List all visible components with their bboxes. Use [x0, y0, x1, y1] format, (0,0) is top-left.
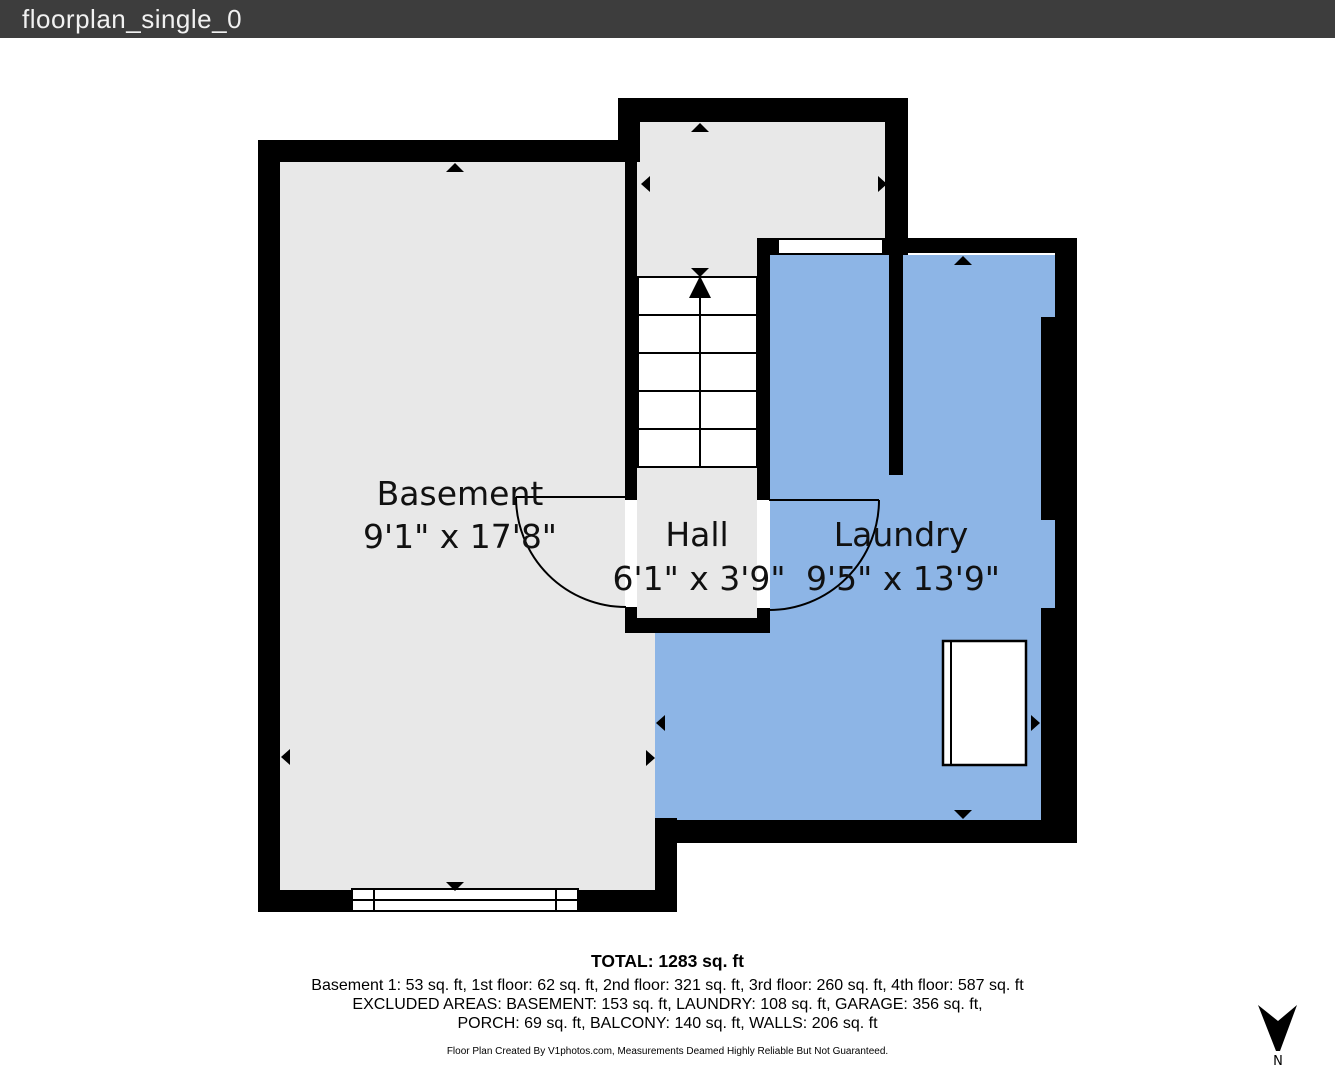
basement-bottom-window	[352, 889, 578, 911]
floorplan-drawing: Basement 9'1" x 17'8" Hall 6'1" x 3'9" L…	[0, 0, 1335, 1080]
laundry-label: Laundry	[834, 515, 968, 554]
total-area-text: TOTAL: 1283 sq. ft	[0, 951, 1335, 972]
floor-areas-text: Basement 1: 53 sq. ft, 1st floor: 62 sq.…	[0, 977, 1335, 995]
fixture-box	[943, 641, 1026, 765]
excluded-areas-line2: PORCH: 69 sq. ft, BALCONY: 140 sq. ft, W…	[0, 1015, 1335, 1033]
excluded-areas-line1: EXCLUDED AREAS: BASEMENT: 153 sq. ft, LA…	[0, 996, 1335, 1014]
basement-dimensions: 9'1" x 17'8"	[363, 517, 557, 556]
floorplan-page: floorplan_single_0	[0, 0, 1335, 1080]
stair-treads-area	[638, 277, 757, 467]
hall-label: Hall	[665, 515, 728, 554]
laundry-dimensions: 9'5" x 13'9"	[806, 559, 1000, 598]
laundry-fixture	[943, 641, 1026, 765]
laundry-top-window	[778, 239, 883, 254]
hall-dimensions: 6'1" x 3'9"	[613, 559, 786, 598]
disclaimer-text: Floor Plan Created By V1photos.com, Meas…	[0, 1046, 1335, 1057]
basement-label: Basement	[377, 474, 544, 513]
stairs	[638, 276, 757, 467]
